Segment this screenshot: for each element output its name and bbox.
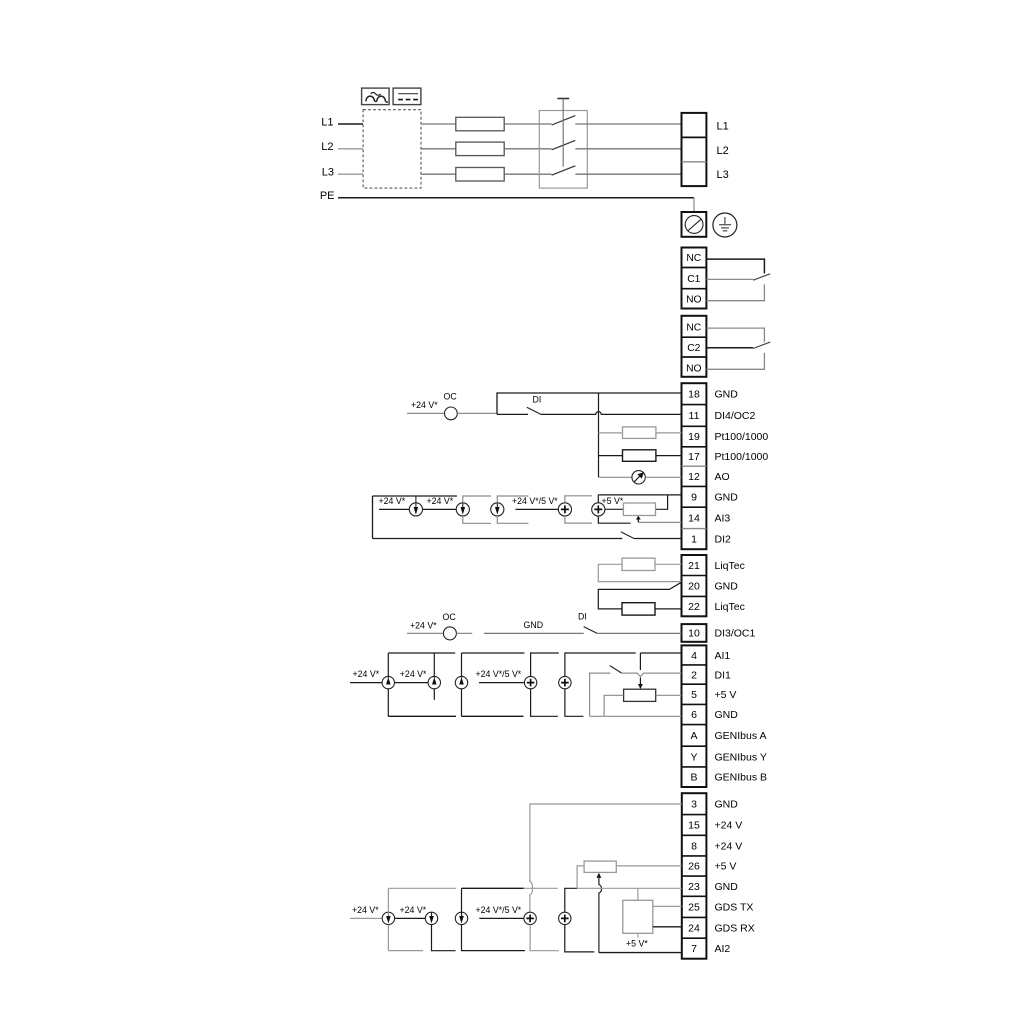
svg-text:Y: Y <box>690 751 697 763</box>
svg-text:AO: AO <box>715 471 730 483</box>
svg-text:GENIbus Y: GENIbus Y <box>715 751 767 763</box>
svg-text:18: 18 <box>688 389 700 401</box>
svg-text:GND: GND <box>715 881 739 893</box>
svg-text:+24 V*/5 V*: +24 V*/5 V* <box>512 496 558 506</box>
svg-text:AI1: AI1 <box>715 650 731 662</box>
svg-text:Pt100/1000: Pt100/1000 <box>715 451 769 463</box>
svg-text:NC: NC <box>686 253 701 264</box>
svg-text:+24 V*: +24 V* <box>427 496 454 506</box>
svg-text:L3: L3 <box>717 169 729 181</box>
svg-text:GND: GND <box>715 492 739 504</box>
svg-text:+24 V*/5 V*: +24 V*/5 V* <box>476 669 522 679</box>
svg-text:DI1: DI1 <box>715 669 732 681</box>
svg-text:OC: OC <box>443 612 457 622</box>
svg-text:NO: NO <box>686 364 701 375</box>
svg-text:+24 V*: +24 V* <box>411 400 438 410</box>
svg-text:22: 22 <box>688 601 700 613</box>
svg-text:15: 15 <box>688 820 700 832</box>
svg-text:GND: GND <box>524 620 544 630</box>
svg-text:24: 24 <box>688 923 700 935</box>
svg-text:GND: GND <box>715 581 739 593</box>
svg-text:Pt100/1000: Pt100/1000 <box>715 431 769 443</box>
svg-text:6: 6 <box>691 709 697 721</box>
svg-text:+5 V: +5 V <box>715 861 737 873</box>
svg-text:GENIbus A: GENIbus A <box>715 730 767 742</box>
svg-text:7: 7 <box>691 943 697 955</box>
svg-text:GND: GND <box>715 799 739 811</box>
svg-text:17: 17 <box>688 451 700 463</box>
svg-text:OC: OC <box>444 392 458 402</box>
svg-text:DI4/OC2: DI4/OC2 <box>715 410 756 422</box>
svg-text:GENIbus B: GENIbus B <box>715 772 768 784</box>
svg-text:GDS RX: GDS RX <box>715 923 755 935</box>
svg-text:4: 4 <box>691 650 697 662</box>
svg-text:11: 11 <box>689 410 700 422</box>
svg-text:9: 9 <box>691 492 697 504</box>
svg-text:A: A <box>690 730 697 742</box>
svg-text:NC: NC <box>686 322 701 333</box>
svg-text:25: 25 <box>688 902 700 914</box>
svg-text:23: 23 <box>688 881 700 893</box>
svg-text:PE: PE <box>320 190 335 202</box>
svg-text:AI3: AI3 <box>715 513 731 525</box>
svg-text:+24 V*: +24 V* <box>353 669 380 679</box>
svg-text:B: B <box>690 772 697 784</box>
svg-text:+24 V: +24 V <box>715 840 743 852</box>
svg-text:10: 10 <box>688 628 700 640</box>
svg-text:+24 V*: +24 V* <box>379 496 406 506</box>
svg-text:GND: GND <box>715 389 739 401</box>
svg-text:NO: NO <box>686 294 701 305</box>
svg-text:+24 V: +24 V <box>715 820 743 832</box>
svg-text:C1: C1 <box>687 274 700 285</box>
svg-text:8: 8 <box>691 840 697 852</box>
svg-text:19: 19 <box>688 431 700 443</box>
svg-text:DI3/OC1: DI3/OC1 <box>715 628 756 640</box>
svg-text:L1: L1 <box>321 117 333 129</box>
svg-text:L2: L2 <box>321 141 333 153</box>
svg-text:3: 3 <box>691 799 697 811</box>
svg-text:L1: L1 <box>717 120 729 132</box>
svg-text:DI: DI <box>578 612 587 622</box>
svg-text:1: 1 <box>691 534 697 546</box>
svg-text:+5 V*: +5 V* <box>626 939 648 949</box>
svg-text:GND: GND <box>715 709 739 721</box>
svg-text:L2: L2 <box>717 145 729 157</box>
svg-text:+24 V*/5 V*: +24 V*/5 V* <box>476 905 522 915</box>
svg-text:+24 V*: +24 V* <box>352 905 379 915</box>
svg-text:AI2: AI2 <box>715 943 731 955</box>
svg-text:LiqTec: LiqTec <box>715 601 745 613</box>
svg-text:+24 V*: +24 V* <box>400 905 427 915</box>
svg-text:+24 V*: +24 V* <box>400 669 427 679</box>
svg-text:12: 12 <box>688 471 700 483</box>
svg-text:26: 26 <box>688 861 700 873</box>
svg-text:21: 21 <box>688 560 700 572</box>
svg-text:14: 14 <box>688 513 700 525</box>
svg-text:C2: C2 <box>687 343 700 354</box>
svg-text:5: 5 <box>691 689 697 701</box>
svg-text:GDS TX: GDS TX <box>715 902 754 914</box>
svg-text:L3: L3 <box>322 167 334 179</box>
svg-text:2: 2 <box>691 669 697 681</box>
svg-text:+5 V: +5 V <box>715 689 737 701</box>
svg-text:DI: DI <box>533 394 542 404</box>
svg-text:DI2: DI2 <box>715 534 732 546</box>
svg-text:+5 V*: +5 V* <box>602 496 624 506</box>
svg-text:20: 20 <box>688 581 700 593</box>
svg-text:LiqTec: LiqTec <box>715 560 745 572</box>
svg-text:+24 V*: +24 V* <box>410 621 437 631</box>
